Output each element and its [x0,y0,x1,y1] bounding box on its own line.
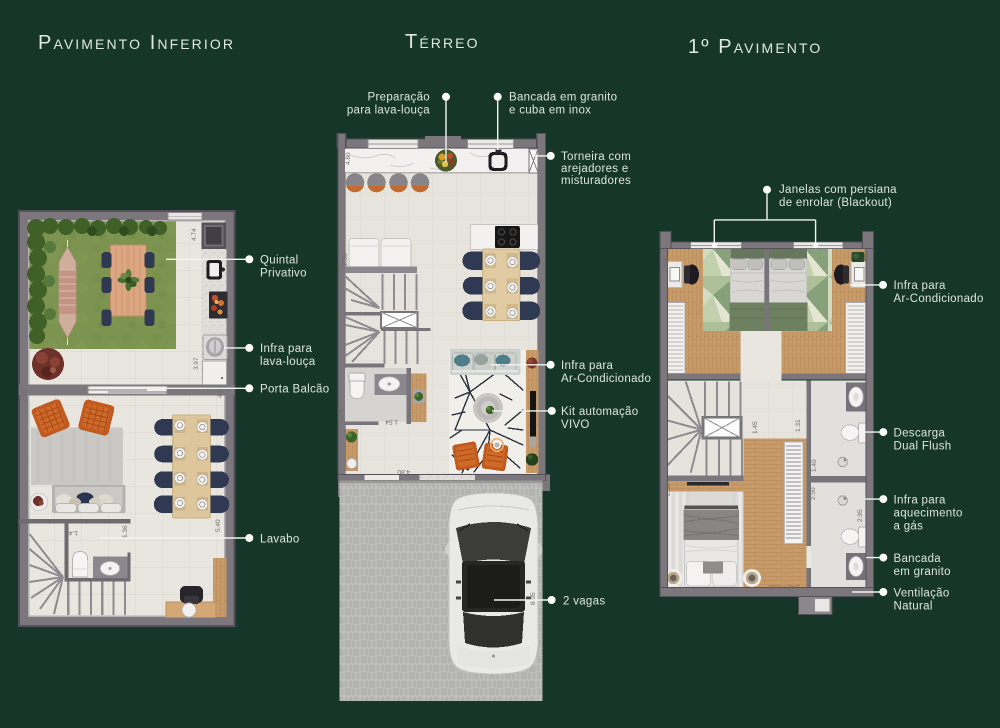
svg-text:de enrolar (Blackout): de enrolar (Blackout) [779,197,892,209]
svg-text:4.80: 4.80 [397,468,410,475]
svg-text:1.36: 1.36 [122,525,129,538]
svg-text:Preparação: Preparação [368,92,430,104]
svg-text:2.95: 2.95 [342,253,349,266]
svg-text:2.50: 2.50 [810,487,817,500]
svg-text:4.80: 4.80 [345,152,352,165]
svg-text:Bancada: Bancada [894,553,942,565]
svg-text:e cuba em inox: e cuba em inox [509,105,591,117]
svg-text:Ar-Condicionado: Ar-Condicionado [561,373,651,385]
svg-text:1.40 - 3.30: 1.40 - 3.30 [769,583,800,590]
svg-text:1.31: 1.31 [795,419,802,432]
svg-text:Infra para: Infra para [561,360,614,372]
svg-text:Dual Flush: Dual Flush [894,440,952,452]
svg-text:Bancada em granito: Bancada em granito [509,92,617,104]
svg-text:2 vagas: 2 vagas [563,595,605,607]
svg-text:Torneira com: Torneira com [561,151,631,163]
svg-text:a gás: a gás [894,520,924,532]
svg-text:2.95: 2.95 [21,389,28,402]
svg-text:Natural: Natural [894,600,933,612]
svg-text:Privativo: Privativo [260,268,307,280]
svg-text:Infra para: Infra para [894,280,947,292]
svg-text:misturadores: misturadores [561,175,631,187]
svg-text:Ar-Condicionado: Ar-Condicionado [894,293,984,305]
svg-text:lava-louça: lava-louça [260,356,316,368]
svg-text:Kit automação: Kit automação [561,406,638,418]
svg-text:4.74: 4.74 [191,228,198,241]
svg-text:1.45: 1.45 [752,421,759,434]
svg-text:2.37: 2.37 [777,252,790,259]
svg-text:2.95: 2.95 [663,255,670,268]
svg-text:Lavabo: Lavabo [260,533,300,545]
svg-text:Infra para: Infra para [894,494,947,506]
svg-text:Porta Balcão: Porta Balcão [260,384,329,396]
svg-text:2.95: 2.95 [857,509,864,522]
svg-text:1.40: 1.40 [811,459,818,472]
svg-text:1º Pavimento: 1º Pavimento [688,36,822,58]
svg-text:2.37: 2.37 [744,252,757,259]
svg-text:Infra para: Infra para [260,343,313,355]
svg-text:VIVO: VIVO [561,419,590,431]
svg-text:Quintal: Quintal [260,255,299,267]
svg-text:Janelas com persiana: Janelas com persiana [779,184,897,196]
svg-text:Pavimento Inferior: Pavimento Inferior [38,32,235,54]
svg-text:arejadores e: arejadores e [561,163,629,175]
svg-text:Ventilação: Ventilação [894,587,950,599]
svg-text:4.80: 4.80 [217,385,224,398]
svg-text:1.40: 1.40 [65,529,78,536]
svg-text:1.20: 1.20 [337,407,344,420]
svg-text:em granito: em granito [894,566,951,578]
svg-text:1.54: 1.54 [385,418,398,425]
svg-text:2.50: 2.50 [665,483,672,496]
svg-text:8.05: 8.05 [530,592,537,605]
svg-text:Descarga: Descarga [894,427,946,439]
svg-text:para lava-louça: para lava-louça [347,105,430,117]
svg-text:3.97: 3.97 [193,357,200,370]
svg-text:aquecimento: aquecimento [894,507,963,519]
svg-text:Térreo: Térreo [405,31,480,53]
svg-text:5.40: 5.40 [215,519,222,532]
